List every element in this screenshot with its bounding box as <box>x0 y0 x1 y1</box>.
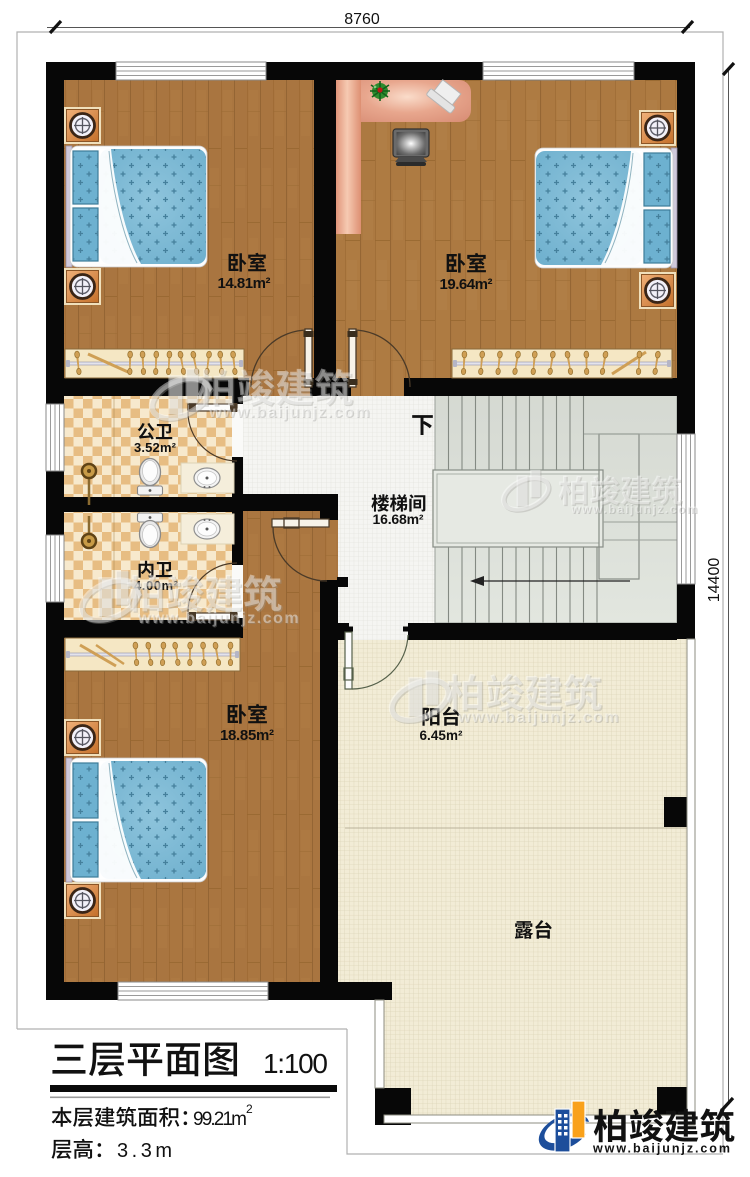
svg-text:2: 2 <box>246 1102 253 1116</box>
svg-text:6.45m²: 6.45m² <box>420 728 464 743</box>
svg-text:19.64m²: 19.64m² <box>440 276 493 293</box>
svg-text:18.85m²: 18.85m² <box>220 727 274 744</box>
svg-text:14400: 14400 <box>706 558 723 603</box>
svg-text:www.baijunjz.com: www.baijunjz.com <box>137 610 300 627</box>
svg-text:www.baijunjz.com: www.baijunjz.com <box>570 502 699 516</box>
svg-text:www.baijunjz.com: www.baijunjz.com <box>592 1142 732 1156</box>
svg-text:8760: 8760 <box>344 11 380 28</box>
svg-text:www.baijunjz.com: www.baijunjz.com <box>457 709 620 726</box>
svg-text:3.52m²: 3.52m² <box>134 440 177 455</box>
svg-text:16.68m²: 16.68m² <box>373 511 424 527</box>
svg-text:14.81m²: 14.81m² <box>218 275 271 292</box>
svg-text:3.3m: 3.3m <box>117 1140 172 1162</box>
svg-text:1:100: 1:100 <box>263 1048 328 1079</box>
svg-text:99.21m: 99.21m <box>193 1109 247 1130</box>
svg-text:www.baijunjz.com: www.baijunjz.com <box>208 404 371 421</box>
